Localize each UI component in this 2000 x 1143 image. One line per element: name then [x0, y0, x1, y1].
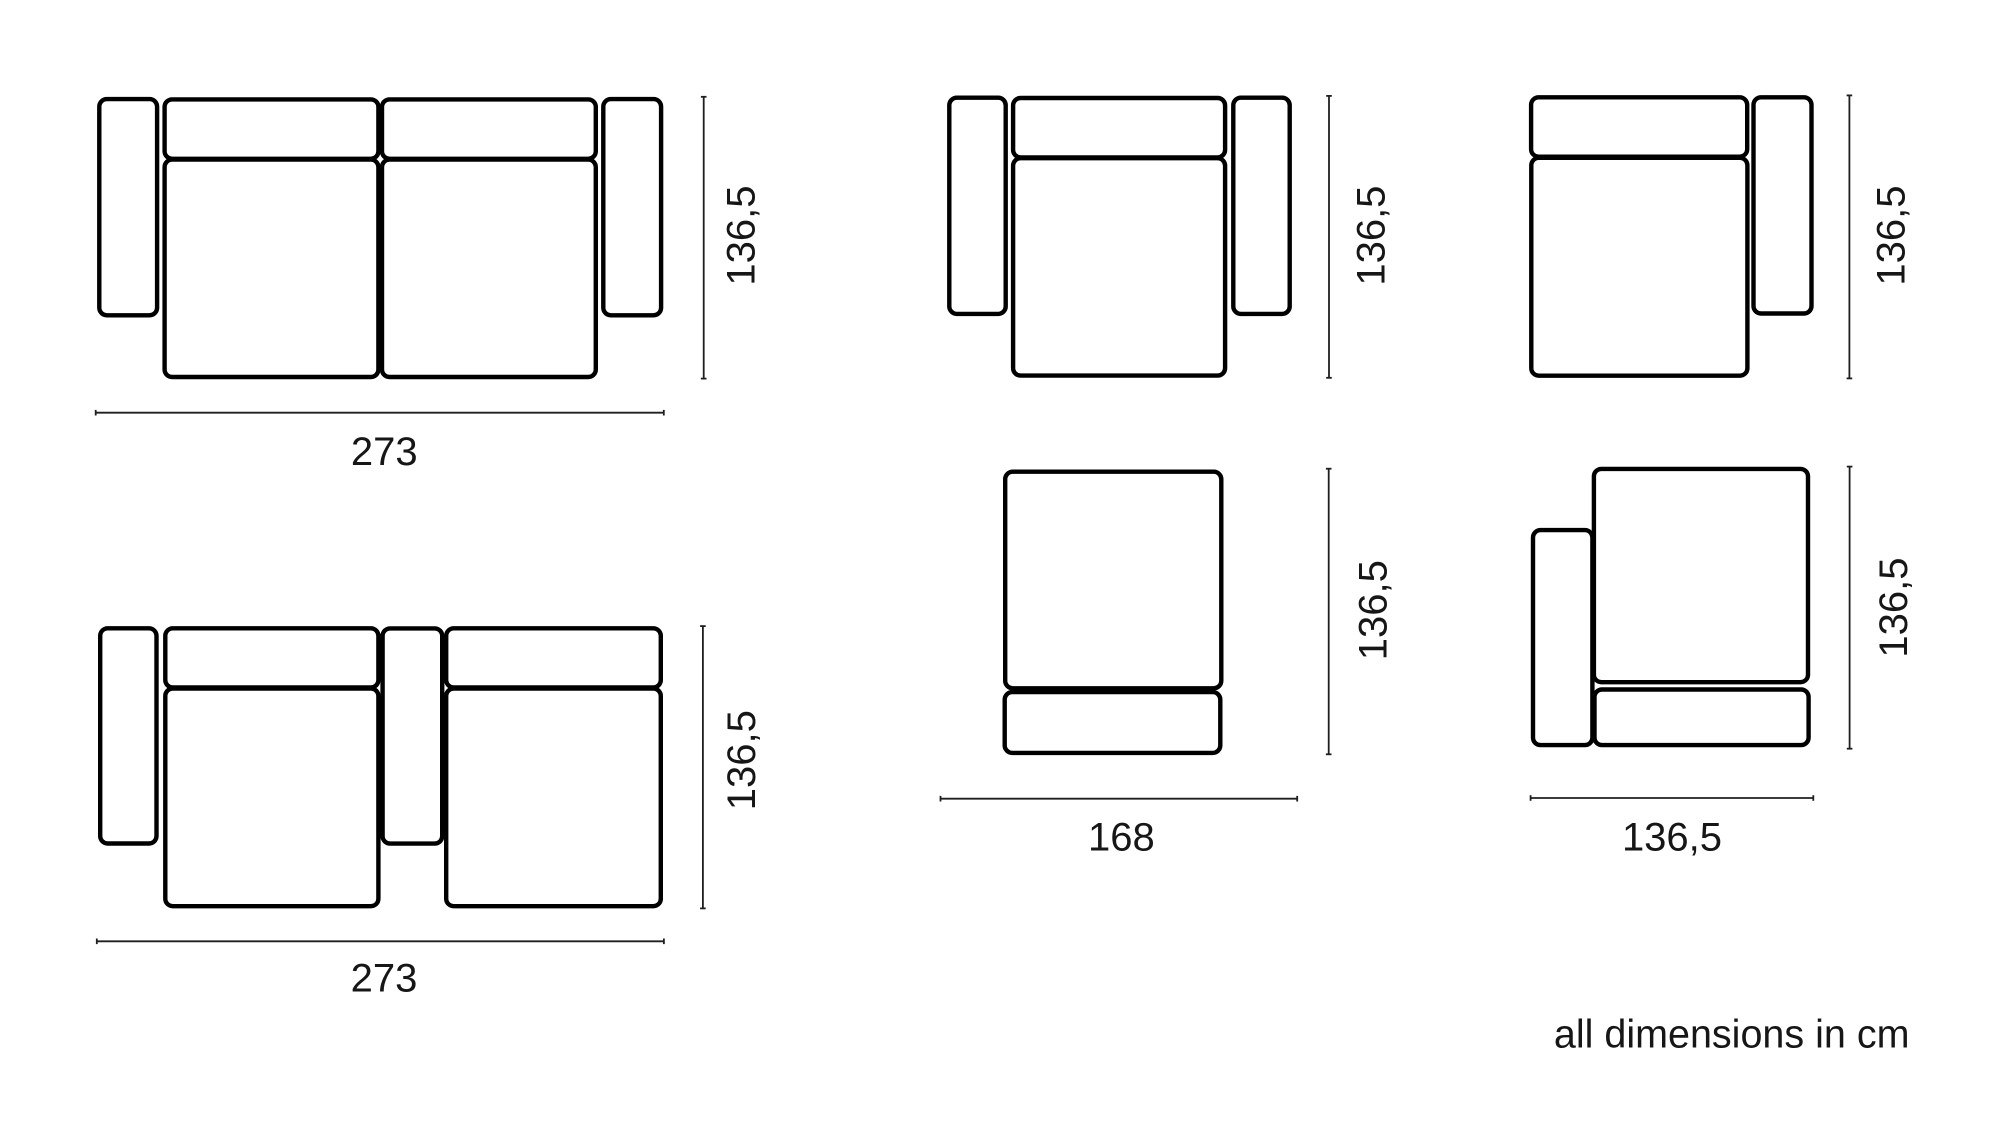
svg-text:all dimensions in cm: all dimensions in cm: [1554, 1012, 1910, 1056]
svg-text:136,5: 136,5: [720, 186, 764, 286]
svg-text:136,5: 136,5: [1869, 186, 1913, 286]
svg-text:273: 273: [351, 430, 418, 474]
svg-text:136,5: 136,5: [1872, 557, 1916, 657]
svg-text:273: 273: [351, 957, 418, 1001]
svg-text:136,5: 136,5: [1352, 560, 1396, 660]
svg-text:136,5: 136,5: [720, 710, 764, 810]
svg-text:136,5: 136,5: [1349, 186, 1393, 286]
svg-text:136,5: 136,5: [1622, 816, 1722, 860]
svg-text:168: 168: [1088, 816, 1155, 860]
